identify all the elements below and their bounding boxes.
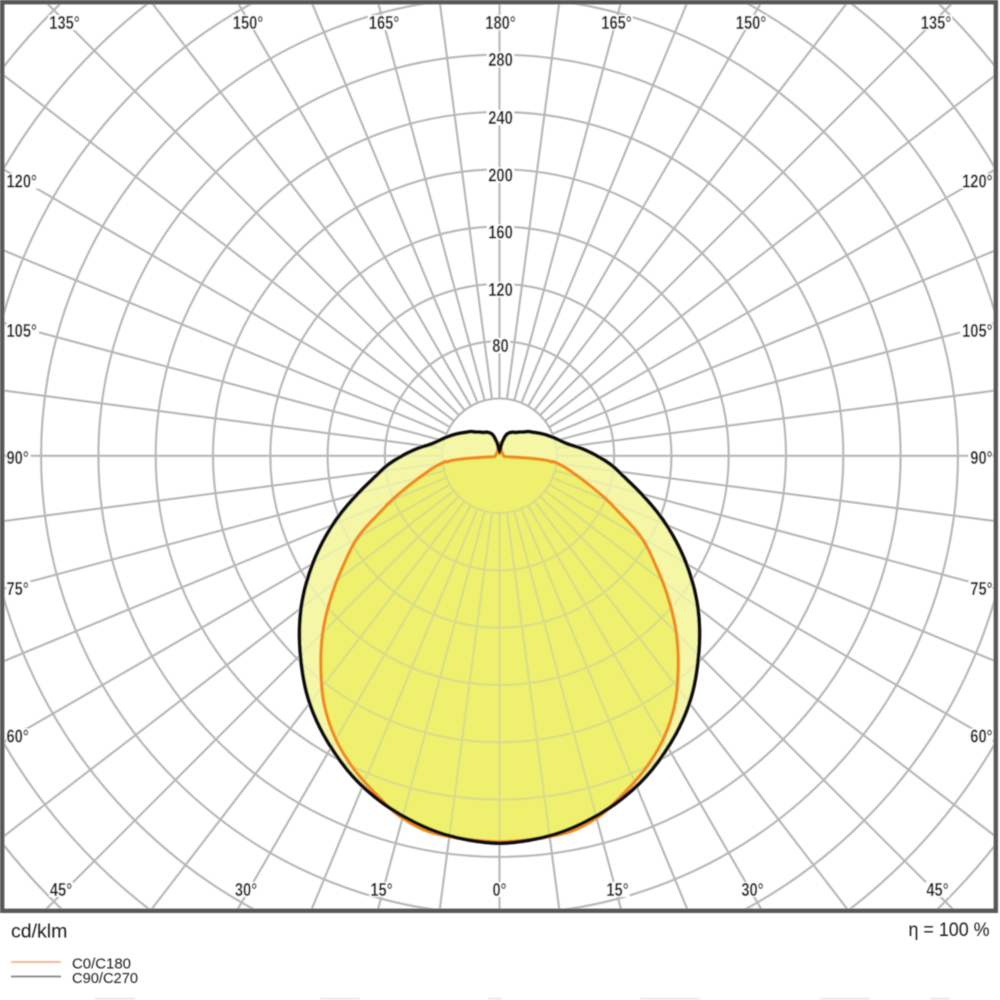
svg-text:30°: 30° <box>235 880 257 900</box>
svg-text:90°: 90° <box>970 448 992 468</box>
svg-text:105°: 105° <box>962 321 992 341</box>
svg-text:120: 120 <box>488 280 513 300</box>
svg-text:240: 240 <box>488 108 513 128</box>
svg-text:280: 280 <box>488 50 513 70</box>
svg-text:30°: 30° <box>741 880 763 900</box>
svg-text:15°: 15° <box>606 880 628 900</box>
svg-text:C90/C270: C90/C270 <box>72 971 138 987</box>
svg-text:200: 200 <box>488 166 513 186</box>
svg-text:165°: 165° <box>369 13 399 33</box>
svg-text:15°: 15° <box>370 880 392 900</box>
svg-text:165°: 165° <box>601 13 631 33</box>
svg-text:45°: 45° <box>926 880 948 900</box>
svg-text:120°: 120° <box>962 172 992 192</box>
svg-text:60°: 60° <box>970 727 992 747</box>
svg-text:75°: 75° <box>970 579 992 599</box>
svg-text:105°: 105° <box>7 321 37 341</box>
svg-text:0°: 0° <box>493 880 507 900</box>
svg-text:60°: 60° <box>7 727 29 747</box>
svg-text:120°: 120° <box>7 172 37 192</box>
svg-text:80: 80 <box>492 336 508 356</box>
svg-text:135°: 135° <box>49 13 79 33</box>
svg-text:75°: 75° <box>7 579 29 599</box>
svg-text:45°: 45° <box>50 880 72 900</box>
svg-text:150°: 150° <box>233 13 263 33</box>
svg-text:160: 160 <box>488 223 513 243</box>
svg-text:η = 100 %: η = 100 % <box>909 919 990 941</box>
svg-text:180°: 180° <box>485 13 515 33</box>
svg-text:150°: 150° <box>736 13 766 33</box>
svg-text:cd/klm: cd/klm <box>11 921 67 943</box>
svg-text:90°: 90° <box>7 448 29 468</box>
svg-text:135°: 135° <box>921 13 951 33</box>
